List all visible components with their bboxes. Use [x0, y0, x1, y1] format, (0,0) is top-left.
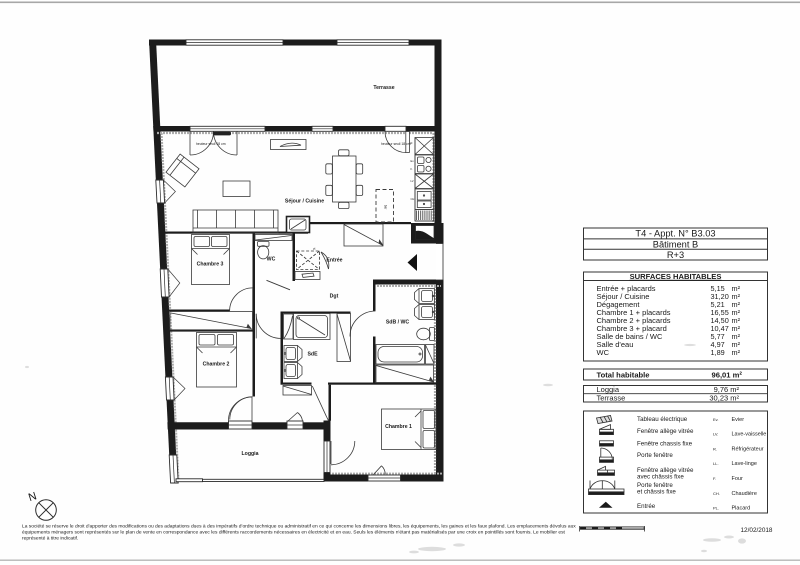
svg-text:Total habitable: Total habitable: [597, 370, 650, 379]
svg-text:Loggia: Loggia: [241, 451, 258, 457]
svg-text:F.: F.: [713, 476, 716, 481]
svg-text:avec châssis fixe: avec châssis fixe: [637, 473, 684, 480]
svg-text:m²: m²: [732, 348, 741, 357]
svg-text:SdB / WC: SdB / WC: [386, 319, 410, 325]
svg-text:Porte fenêtre: Porte fenêtre: [637, 452, 673, 459]
svg-text:Séjour / Cuisine: Séjour / Cuisine: [285, 199, 324, 205]
svg-text:Chaudière: Chaudière: [732, 491, 757, 497]
svg-text:96,01 m²: 96,01 m²: [712, 370, 743, 379]
svg-text:heuteur seuil 18 cm: heuteur seuil 18 cm: [381, 142, 411, 146]
svg-text:12/02/2018: 12/02/2018: [741, 527, 773, 534]
svg-text:T4 - Appt. N° B3.03: T4 - Appt. N° B3.03: [635, 229, 715, 239]
svg-text:Fenêtre allège vitrée: Fenêtre allège vitrée: [637, 428, 694, 435]
svg-text:Dgt: Dgt: [330, 294, 339, 300]
svg-text:Evier: Evier: [732, 417, 745, 423]
svg-text:LL.: LL.: [713, 461, 719, 466]
svg-text:La société se réserve le droit: La société se réserve le droit d'apporte…: [22, 523, 576, 529]
svg-text:Fenêtre chassis fixe: Fenêtre chassis fixe: [637, 440, 693, 447]
svg-text:R.: R.: [411, 141, 414, 145]
svg-text:pl.: pl.: [313, 247, 316, 251]
svg-text:CH.: CH.: [411, 197, 416, 201]
svg-text:R+3: R+3: [667, 250, 684, 260]
svg-text:Tableau électrique: Tableau électrique: [637, 416, 688, 423]
svg-text:SURFACES HABITABLES: SURFACES HABITABLES: [630, 272, 722, 281]
svg-text:F.: F.: [411, 167, 413, 171]
svg-text:Lave-linge: Lave-linge: [732, 461, 757, 467]
svg-text:et châssis fixe: et châssis fixe: [637, 489, 676, 496]
svg-text:équipements ménagers sont repr: équipements ménagers sont représentés su…: [22, 529, 566, 535]
svg-text:N: N: [27, 490, 38, 504]
svg-text:SdE: SdE: [307, 351, 318, 357]
svg-text:LV.: LV.: [411, 179, 415, 183]
svg-text:1,89: 1,89: [711, 348, 725, 357]
svg-text:WC: WC: [597, 348, 610, 357]
svg-text:Ev.: Ev.: [411, 159, 415, 163]
svg-text:Chambre 2: Chambre 2: [203, 362, 230, 368]
svg-text:WC: WC: [267, 256, 276, 262]
svg-text:Chambre 3: Chambre 3: [197, 261, 224, 267]
svg-text:30,23 m²: 30,23 m²: [709, 393, 739, 402]
svg-text:R.: R.: [713, 446, 717, 451]
svg-text:représenté à titre indicatif.: représenté à titre indicatif.: [22, 536, 78, 542]
svg-text:CH.: CH.: [713, 491, 720, 496]
svg-text:Entrée: Entrée: [637, 503, 656, 510]
svg-text:heuteur seuil 18 cm: heuteur seuil 18 cm: [196, 142, 226, 146]
svg-text:PL.: PL.: [713, 505, 719, 510]
svg-text:Ev.: Ev.: [713, 417, 718, 422]
svg-text:Réfrigérateur: Réfrigérateur: [732, 446, 764, 452]
svg-text:Four: Four: [732, 476, 743, 482]
svg-text:bar: bar: [384, 205, 388, 211]
svg-text:Bâtiment B: Bâtiment B: [653, 239, 698, 249]
svg-text:Lave-vaisselle: Lave-vaisselle: [732, 432, 767, 438]
svg-text:Placard: Placard: [732, 505, 751, 511]
svg-text:Chambre 1: Chambre 1: [385, 424, 412, 430]
svg-text:Terrasse: Terrasse: [373, 85, 394, 91]
svg-text:LV.: LV.: [713, 432, 718, 437]
svg-text:Terrasse: Terrasse: [597, 393, 626, 402]
